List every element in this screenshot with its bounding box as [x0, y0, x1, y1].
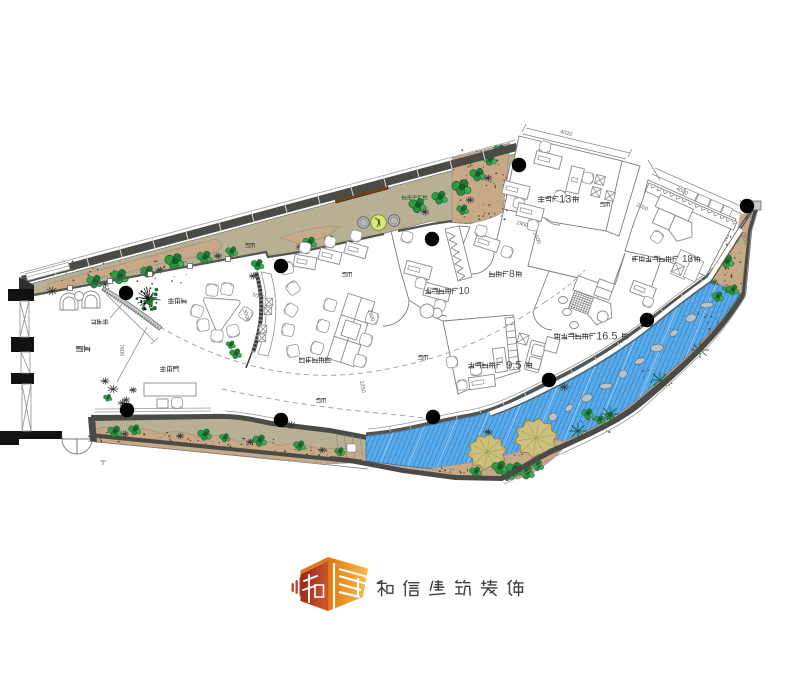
svg-text:8: 8	[509, 269, 515, 280]
svg-text:13: 13	[559, 194, 571, 206]
svg-text:16.5: 16.5	[596, 331, 617, 343]
svg-text:7600: 7600	[118, 344, 124, 356]
svg-text:18: 18	[682, 254, 694, 265]
svg-text:9.5: 9.5	[506, 360, 521, 372]
svg-text:10: 10	[459, 286, 471, 297]
